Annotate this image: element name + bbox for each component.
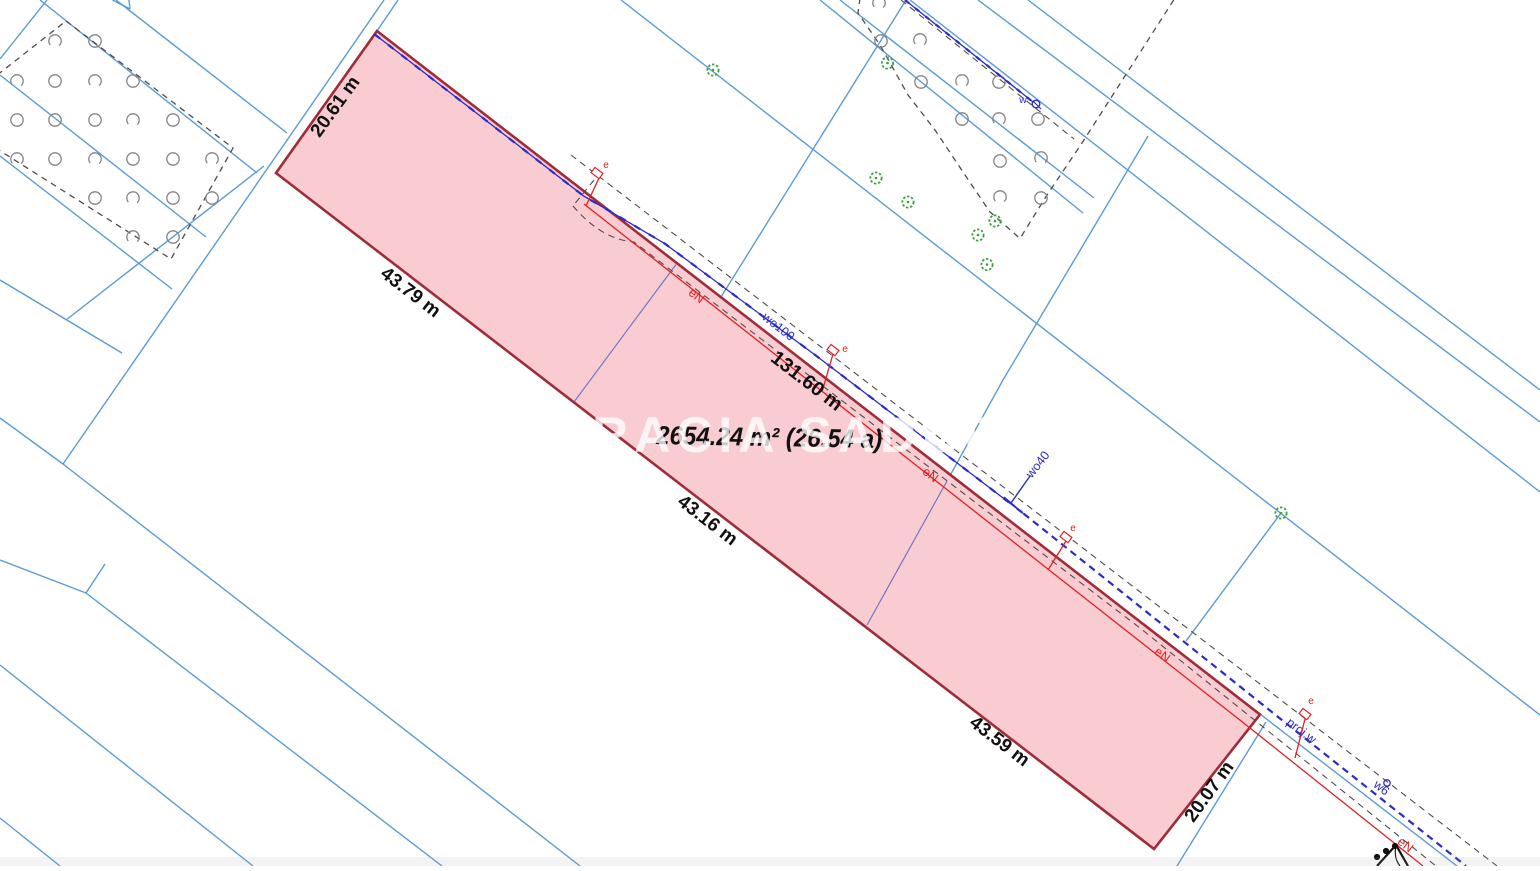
svg-text:w: w	[1018, 94, 1027, 106]
svg-text:BRACIA SADURSCY: BRACIA SADURSCY	[550, 407, 1127, 463]
svg-text:e: e	[842, 344, 848, 355]
svg-text:e: e	[1308, 696, 1314, 707]
svg-text:e: e	[1070, 523, 1076, 534]
svg-text:e: e	[603, 160, 609, 171]
